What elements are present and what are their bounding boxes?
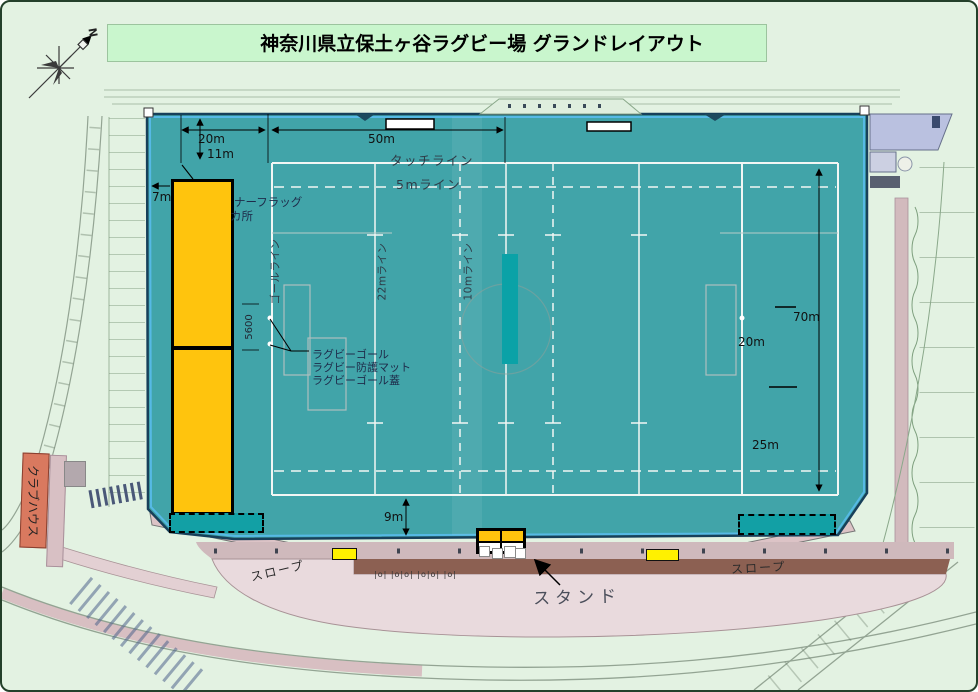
ground-layout-canvas: 神奈川県立保土ヶ谷ラグビー場 グランドレイアウト N クラブハウス 20m 50… [0, 0, 978, 692]
dim-9m: 9m [384, 511, 403, 524]
field-bench-right [587, 122, 631, 131]
stand-label: スタンド [533, 582, 622, 609]
goal-line-label: ゴールライン [268, 237, 283, 307]
stand-bench-marks: |o| |o|o| |o|o| |o| [374, 570, 457, 579]
protection-sheet-area [171, 179, 234, 515]
clubhouse-label: クラブハウス [28, 455, 42, 547]
dim-7m: 7m [152, 191, 171, 204]
rugby-goal-cover-label: ラグビーゴール蓋 [312, 372, 400, 388]
dim-50m: 50m [368, 133, 395, 146]
marker-yellow-left [332, 548, 357, 560]
staging-area-left [169, 513, 264, 533]
stand-walkway [196, 542, 954, 559]
dugout-seat [515, 548, 526, 559]
staging-area-right [738, 514, 836, 535]
touch-line-label: タッチライン [390, 150, 474, 169]
right-walk-path [895, 198, 908, 550]
clubhouse-block [64, 461, 86, 487]
corner-flag-label-2: カ所 [230, 208, 253, 224]
22m-line-label: 22mライン [375, 237, 390, 307]
10m-line-label: 10mライン [461, 237, 476, 307]
sheet-divider [173, 346, 233, 350]
site-plan-graphics [2, 2, 976, 690]
page-title: 神奈川県立保土ヶ谷ラグビー場 グランドレイアウト [107, 24, 767, 62]
dugout-seat [492, 548, 503, 559]
5m-line-label: 5mライン [396, 174, 461, 193]
dim-25m: 25m [752, 439, 779, 452]
dim-20m-right: 20m [738, 336, 765, 349]
stairs [90, 490, 141, 499]
dim-70m: 70m [793, 311, 820, 324]
dim-goal-5600: 5600 [244, 305, 256, 349]
field-bench-left [386, 119, 434, 129]
dugout-seat [479, 546, 490, 557]
center-strip [502, 254, 518, 364]
dim-11m: 11m [207, 148, 234, 161]
compass-icon [29, 36, 91, 98]
slope-label-right: スロープ [731, 558, 787, 578]
top-bump [480, 99, 641, 114]
dim-20m-top: 20m [198, 133, 225, 146]
marker-yellow-right [646, 549, 679, 561]
